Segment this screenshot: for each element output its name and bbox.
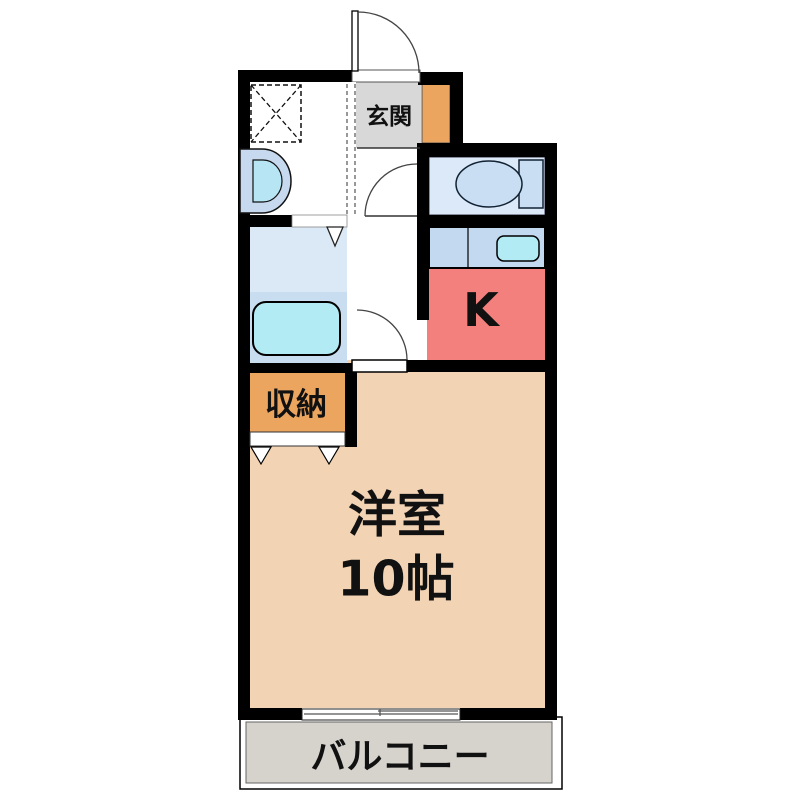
main-room-size-label: 10帖	[337, 551, 454, 608]
kitchen-counter-icon	[429, 227, 545, 268]
shoe-cabinet	[422, 84, 450, 143]
wall	[345, 363, 357, 447]
wall	[417, 143, 557, 157]
wall	[417, 215, 557, 227]
toilet-bowl	[456, 161, 522, 207]
washbasin-icon	[240, 149, 291, 213]
entrance-door-leaf	[352, 11, 358, 71]
wall	[545, 143, 557, 720]
wall	[238, 70, 354, 82]
wall	[407, 360, 557, 372]
entrance-label: 玄関	[366, 103, 412, 130]
bathtub-icon	[253, 302, 340, 355]
corridor-floor	[356, 148, 417, 363]
closet-doors	[250, 432, 345, 446]
wall	[450, 72, 463, 149]
bathroom-door-gap	[292, 215, 347, 227]
kitchen-sink-icon	[497, 236, 539, 261]
floor-plan-drawing: 玄関 K 収納 洋室 10帖 バルコニー	[0, 0, 800, 800]
wall	[238, 708, 302, 720]
wall	[460, 708, 557, 720]
kitchen-label: K	[463, 283, 501, 337]
wall	[417, 143, 429, 320]
floor-plan: 玄関 K 収納 洋室 10帖 バルコニー	[0, 0, 800, 800]
wall	[238, 363, 357, 373]
entrance-threshold	[352, 70, 420, 82]
wall	[238, 215, 292, 227]
balcony-label: バルコニー	[310, 737, 489, 778]
room-door-leaf	[352, 360, 407, 372]
main-room-name-label: 洋室	[348, 487, 446, 544]
storage-label: 収納	[265, 387, 327, 423]
entrance-door-swing-arc	[358, 12, 419, 73]
toilet-icon	[456, 160, 543, 208]
